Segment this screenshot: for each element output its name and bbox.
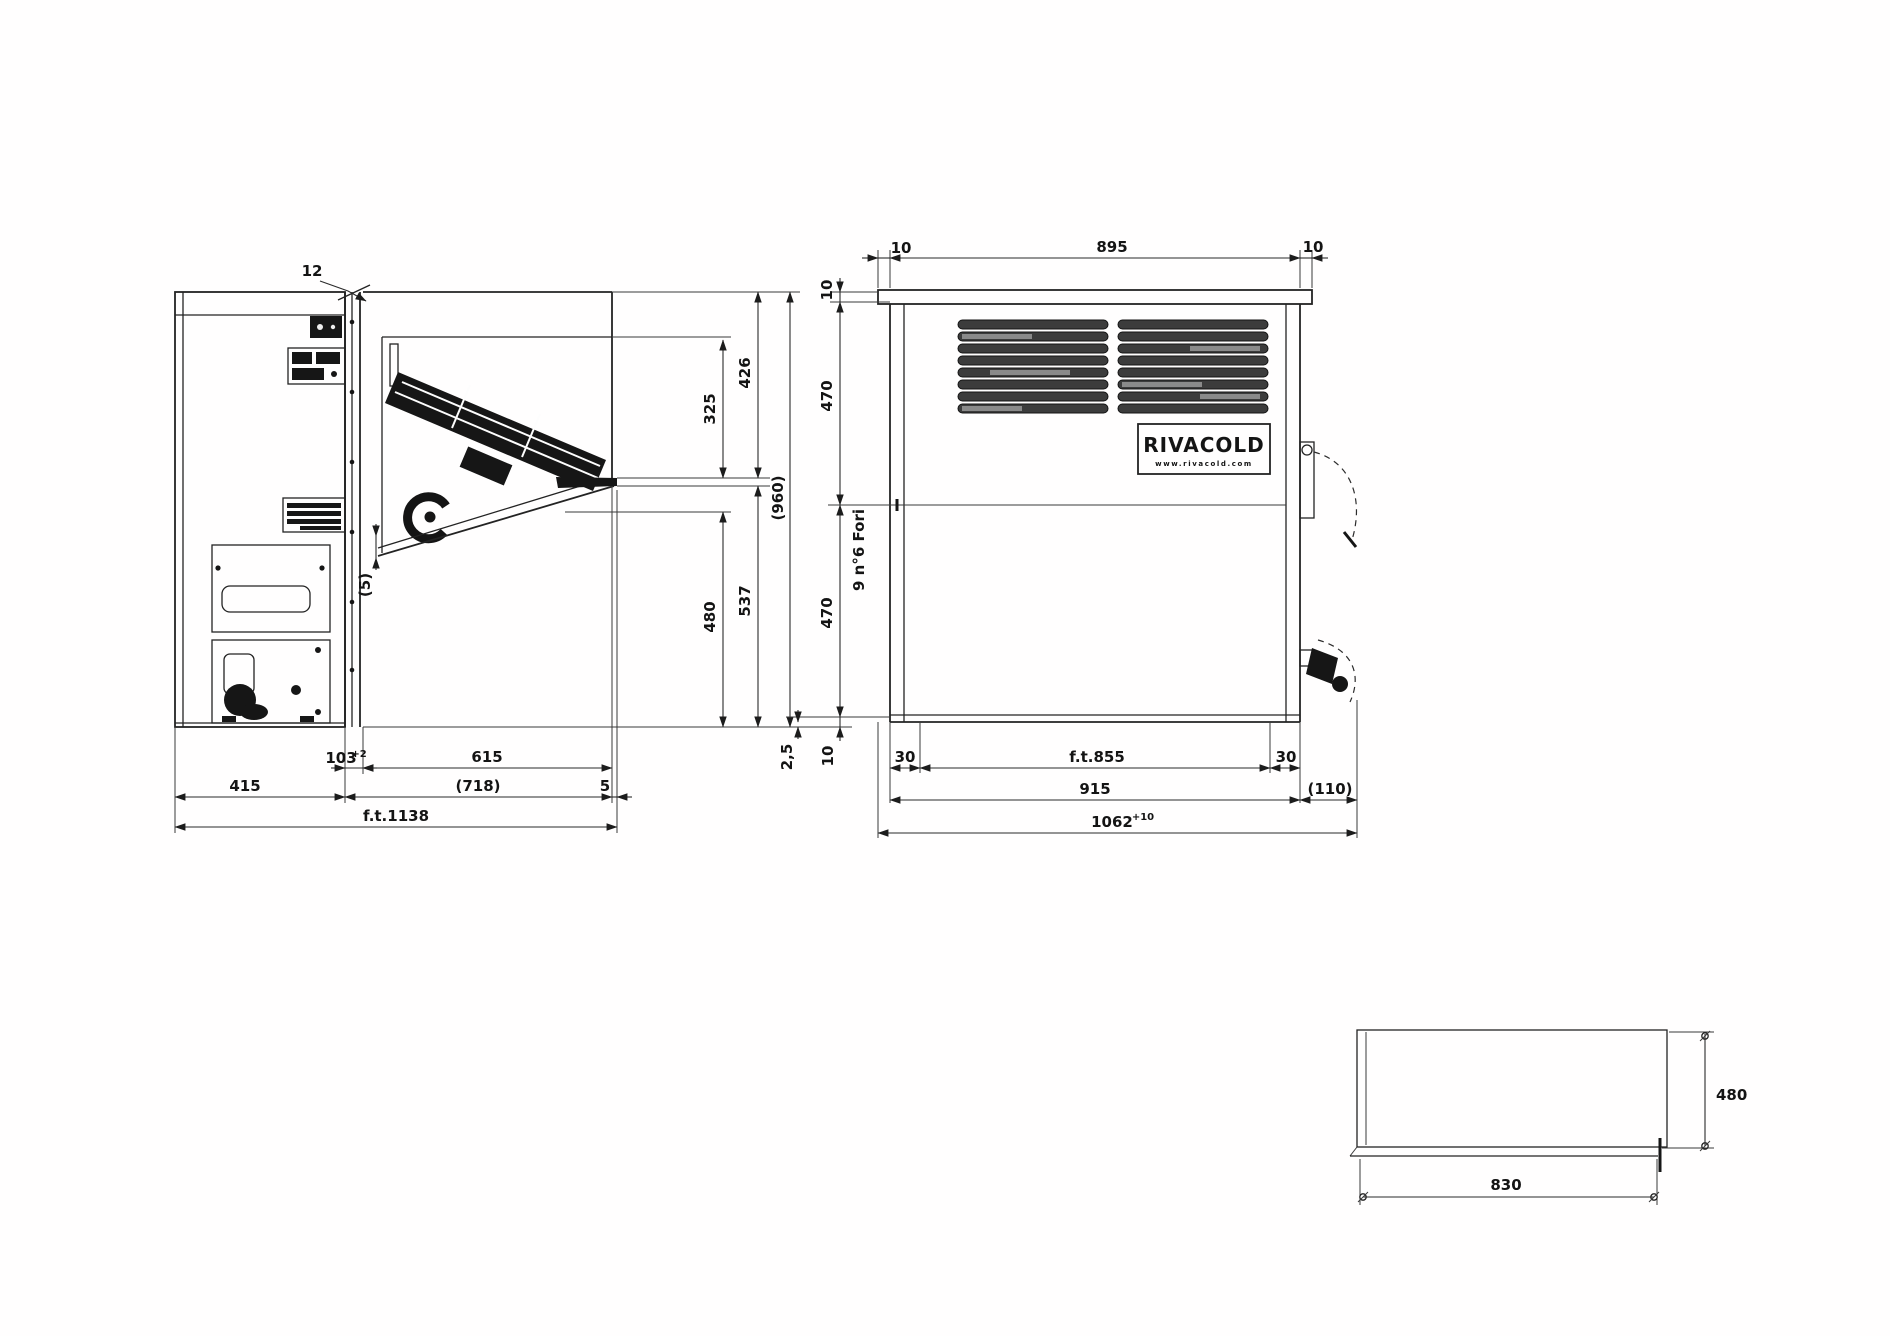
dim-12: 12 xyxy=(302,262,323,280)
cutout-view: 480 830 xyxy=(1350,1030,1747,1205)
dim-103-tol: +2 xyxy=(351,749,366,760)
dim-718: (718) xyxy=(455,777,500,795)
dim-5: 5 xyxy=(600,777,610,795)
dim-915: 915 xyxy=(1079,780,1110,798)
top-cap xyxy=(878,290,1312,304)
dim-30-left: 30 xyxy=(895,748,916,766)
brand-logo: RIVACOLD xyxy=(1143,433,1264,457)
holes-note: 9 n°6 Fori xyxy=(850,509,868,591)
logo-plate: RIVACOLD www.rivacold.com xyxy=(1138,424,1270,474)
wall-panel xyxy=(338,285,370,727)
dim-2-5: 2,5 xyxy=(778,744,796,771)
dim-10-top-left: 10 xyxy=(891,239,912,257)
dim-325: 325 xyxy=(701,393,719,424)
dim-10-left-top: 10 xyxy=(818,280,836,301)
dim-gap-5: (5) xyxy=(356,573,374,597)
dim-470-upper: 470 xyxy=(818,380,836,411)
terminal-strip xyxy=(283,498,345,532)
dim-960: (960) xyxy=(769,475,787,520)
dim-110: (110) xyxy=(1307,780,1352,798)
cutout-dim-830: 830 xyxy=(1490,1176,1521,1194)
side-view-dimensions: 12 325 426 480 537 (960) (5) 103 xyxy=(175,262,852,833)
dim-480: 480 xyxy=(701,601,719,632)
vent-grille-left xyxy=(958,320,1108,413)
dim-615: 615 xyxy=(471,748,502,766)
dim-1062-tol: +10 xyxy=(1132,812,1154,823)
dim-ft855: f.t.855 xyxy=(1069,748,1125,766)
dim-ft1138: f.t.1138 xyxy=(363,807,429,825)
side-view xyxy=(175,285,617,727)
dim-10-left-bottom: 10 xyxy=(819,746,837,767)
vent-grille-right xyxy=(1118,320,1268,413)
dim-415: 415 xyxy=(229,777,260,795)
dim-470-lower: 470 xyxy=(818,597,836,628)
evaporator-housing xyxy=(363,292,617,556)
technical-drawing-page: 12 325 426 480 537 (960) (5) 103 xyxy=(0,0,1890,1336)
dim-895: 895 xyxy=(1096,238,1127,256)
dim-10-top-right: 10 xyxy=(1303,238,1324,256)
drain-valve xyxy=(1300,640,1355,702)
cutout-rect xyxy=(1357,1030,1667,1147)
compressor-assembly xyxy=(212,545,330,723)
front-view: RIVACOLD www.rivacold.com xyxy=(828,290,1356,722)
drip-tray xyxy=(378,486,614,556)
cutout-dim-480: 480 xyxy=(1716,1086,1747,1104)
drawing-canvas: 12 325 426 480 537 (960) (5) 103 xyxy=(0,0,1890,1336)
electrical-box xyxy=(288,316,345,384)
door-bracket xyxy=(1300,442,1356,547)
dim-426: 426 xyxy=(736,357,754,388)
brand-website: www.rivacold.com xyxy=(1155,460,1253,468)
dim-537: 537 xyxy=(736,585,754,616)
dim-1062: 1062 xyxy=(1091,813,1133,831)
dim-30-right: 30 xyxy=(1276,748,1297,766)
